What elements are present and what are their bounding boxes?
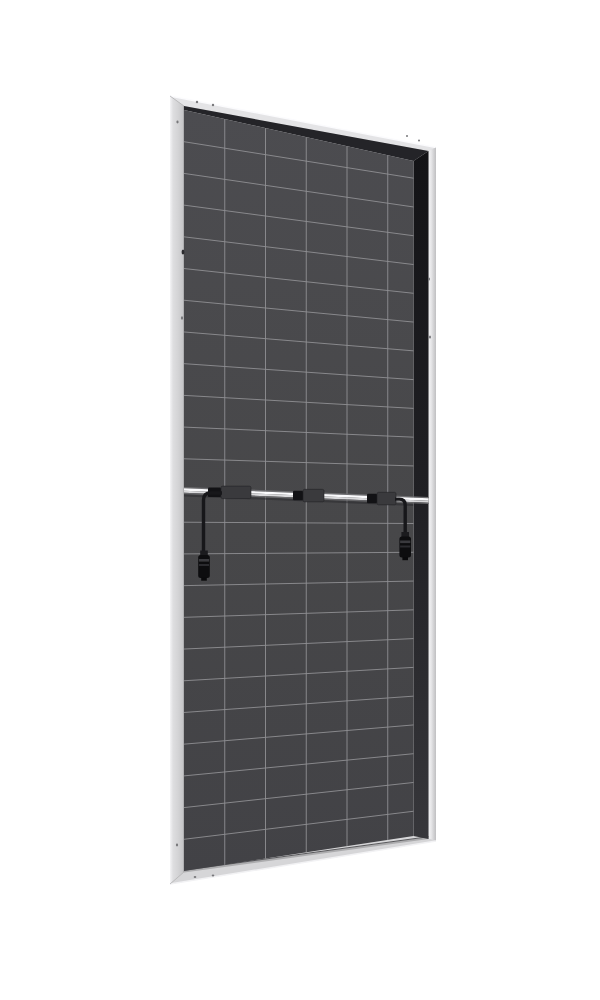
- connector-ridge: [199, 564, 209, 566]
- cable-clip-3: [367, 494, 377, 504]
- frame-left-face: [170, 96, 184, 884]
- frame-hole: [212, 104, 214, 106]
- frame-hole: [196, 101, 198, 103]
- junction-box-1: [221, 486, 251, 499]
- connector-tip: [201, 578, 207, 581]
- connector-body: [198, 555, 210, 578]
- frame-hole: [182, 249, 185, 254]
- frame-hole: [176, 121, 178, 124]
- junction-box-2: [303, 489, 324, 502]
- frame-hole: [428, 278, 430, 281]
- product-image-canvas: [0, 0, 600, 1000]
- frame-hole: [194, 876, 197, 878]
- connector-ridge: [400, 546, 410, 548]
- connector-tip: [402, 557, 408, 560]
- connector-ridge: [199, 559, 209, 562]
- frame-hole: [418, 140, 420, 142]
- connector-ferrule: [401, 532, 409, 537]
- frame-hole: [212, 875, 215, 877]
- frame-right-edge: [429, 148, 437, 842]
- frame-hole: [181, 316, 183, 319]
- frame-inner-wall-right: [414, 151, 429, 839]
- frame-hole: [406, 135, 408, 137]
- connector-ferrule: [200, 551, 208, 556]
- connector-ridge: [400, 541, 410, 544]
- frame-hole: [429, 336, 431, 339]
- cable-clip-2: [293, 491, 303, 501]
- solar-panel-render: [0, 0, 600, 1000]
- junction-box-3: [377, 492, 396, 505]
- frame-hole: [176, 844, 178, 847]
